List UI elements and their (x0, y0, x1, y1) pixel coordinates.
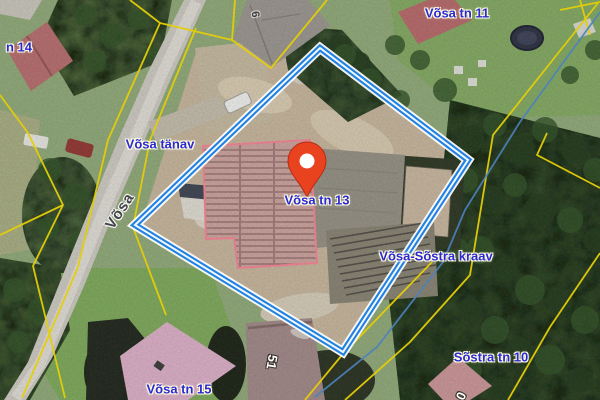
aerial-map-view[interactable]: n 14 Võsa tn 11 Võsa tänav Võsa Võsa tn … (0, 0, 600, 400)
map-canvas (0, 0, 600, 400)
photo-grain-light (0, 0, 600, 400)
